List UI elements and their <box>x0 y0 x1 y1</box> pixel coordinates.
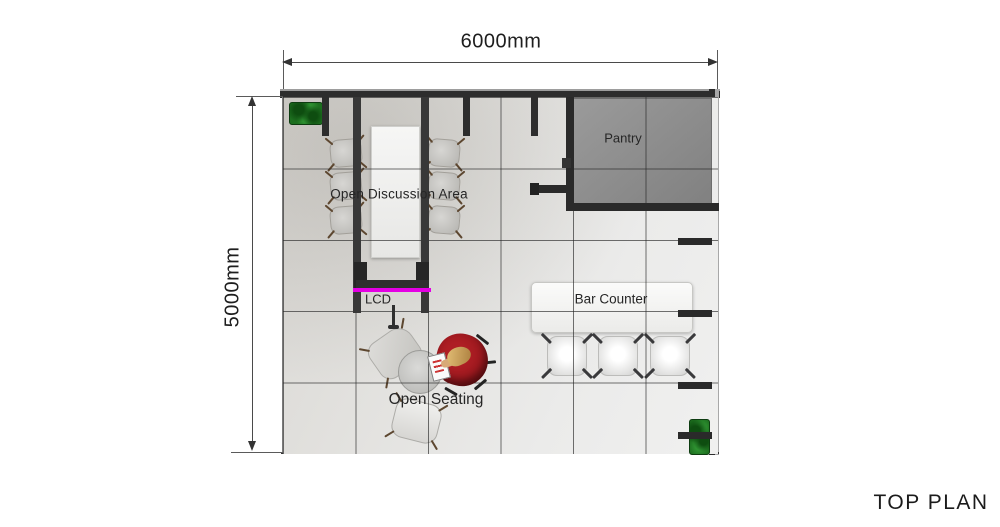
lcd-stand-foot <box>388 325 399 329</box>
extension-line <box>236 96 283 97</box>
bar-stool <box>650 336 690 376</box>
arrowhead-up-icon <box>248 96 256 106</box>
width-dimension-line <box>289 62 712 63</box>
arrowhead-left-icon <box>282 58 292 66</box>
pantry-entry-wall-cap <box>530 183 539 195</box>
label-open-discussion-area: Open Discussion Area <box>330 187 468 202</box>
wall-stub <box>678 382 712 389</box>
wall-stub <box>463 97 470 136</box>
arrowhead-right-icon <box>708 58 718 66</box>
page-title: TOP PLAN <box>873 491 988 515</box>
pantry-room <box>573 98 712 207</box>
extension-line <box>231 452 283 453</box>
label-lcd: LCD <box>365 292 391 307</box>
extension-line <box>283 50 284 89</box>
floor-plan-canvas: 6000mm 5000mm <box>0 0 1000 527</box>
plant-icon <box>289 102 323 125</box>
bar-stool <box>547 336 587 376</box>
extension-line <box>717 50 718 89</box>
pantry-wall-bottom <box>566 203 719 211</box>
discussion-chair <box>427 205 461 236</box>
pantry-wall-left <box>566 97 574 211</box>
wall-stub <box>531 97 538 136</box>
wall-stub <box>322 97 329 136</box>
wall-stub <box>678 310 712 317</box>
wall-connector <box>562 158 571 168</box>
bar-counter <box>531 282 693 333</box>
discussion-chair <box>427 138 461 169</box>
height-dimension-line <box>252 101 253 446</box>
wall-stub <box>678 238 712 245</box>
width-dimension-label: 6000mm <box>461 31 542 54</box>
label-open-seating: Open Seating <box>389 391 484 409</box>
arrowhead-down-icon <box>248 441 256 451</box>
label-bar-counter: Bar Counter <box>575 292 648 307</box>
bar-stool <box>598 336 638 376</box>
red-armchair-with-person <box>428 330 494 392</box>
height-dimension-label: 5000mm <box>222 247 245 328</box>
wall-stub <box>678 432 712 439</box>
lcd-stand <box>392 305 395 327</box>
label-pantry: Pantry <box>604 131 642 146</box>
